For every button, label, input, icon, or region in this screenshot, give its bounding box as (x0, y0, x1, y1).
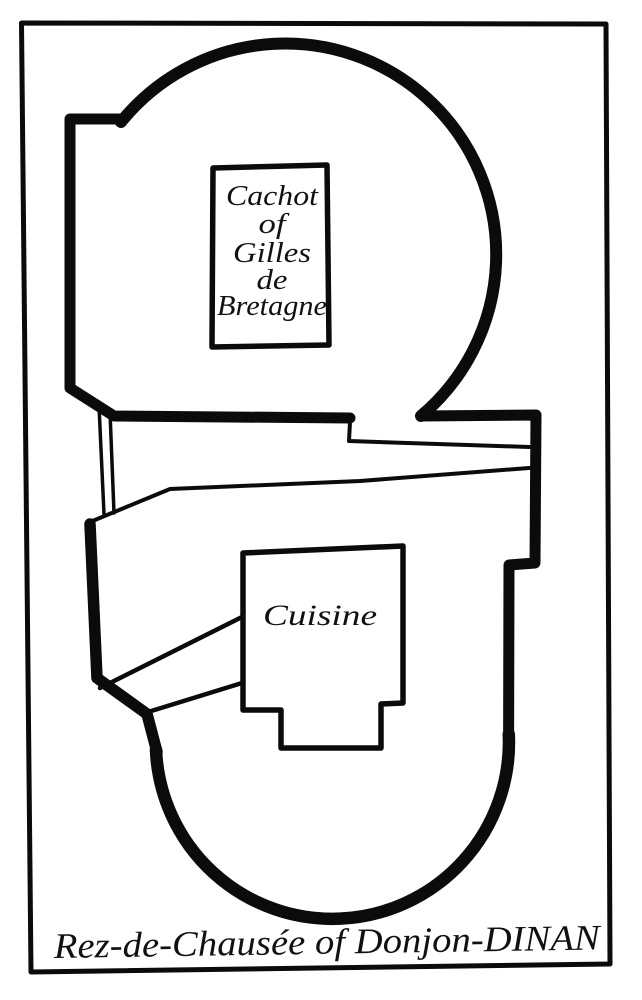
svg-text:Rez-de-Chausée of Donjon-DINAN: Rez-de-Chausée of Donjon-DINAN (52, 917, 602, 966)
svg-text:Bretagne: Bretagne (217, 290, 327, 322)
svg-text:Cuisine: Cuisine (263, 599, 377, 632)
svg-text:of: of (259, 208, 291, 240)
